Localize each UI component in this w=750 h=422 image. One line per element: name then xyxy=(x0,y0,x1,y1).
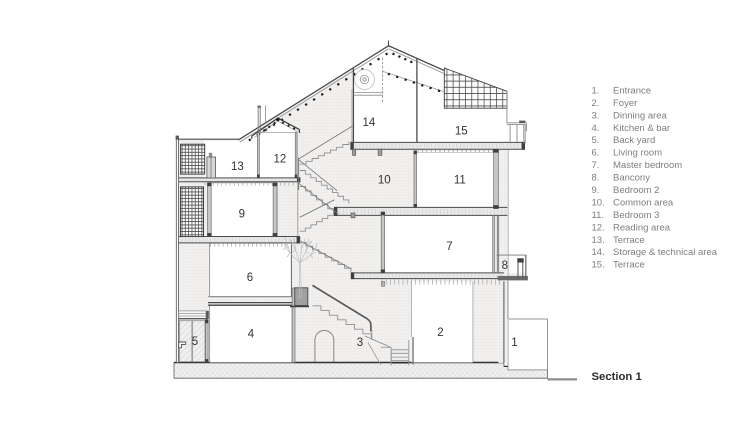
svg-text:Back yard: Back yard xyxy=(613,135,655,146)
svg-text:13: 13 xyxy=(231,161,244,173)
svg-text:6.: 6. xyxy=(592,148,600,159)
svg-text:Entrance: Entrance xyxy=(613,85,651,96)
svg-text:12: 12 xyxy=(274,153,287,165)
svg-text:6: 6 xyxy=(247,272,253,284)
svg-text:Terrace: Terrace xyxy=(613,235,645,246)
svg-text:5.: 5. xyxy=(592,135,600,146)
svg-text:9.: 9. xyxy=(592,185,600,196)
svg-text:Master bedroom: Master bedroom xyxy=(613,160,682,171)
svg-text:7.: 7. xyxy=(592,160,600,171)
svg-text:Storage & technical area: Storage & technical area xyxy=(613,247,718,258)
svg-text:Bedroom 2: Bedroom 2 xyxy=(613,185,659,196)
svg-text:10.: 10. xyxy=(592,197,605,208)
svg-text:15: 15 xyxy=(455,126,468,138)
svg-text:12.: 12. xyxy=(592,222,605,233)
svg-text:Terrace: Terrace xyxy=(613,260,645,271)
svg-text:7: 7 xyxy=(446,241,452,253)
svg-text:11.: 11. xyxy=(592,210,605,221)
svg-text:11: 11 xyxy=(454,174,466,186)
svg-text:3: 3 xyxy=(357,337,363,349)
svg-text:3.: 3. xyxy=(592,110,600,121)
svg-text:Living room: Living room xyxy=(613,148,662,159)
svg-text:5: 5 xyxy=(192,336,198,348)
svg-text:Foyer: Foyer xyxy=(613,98,637,109)
svg-text:8: 8 xyxy=(502,260,508,272)
svg-text:Dinning area: Dinning area xyxy=(613,110,668,121)
svg-text:Common area: Common area xyxy=(613,197,674,208)
svg-text:Bedroom 3: Bedroom 3 xyxy=(613,210,659,221)
svg-text:14.: 14. xyxy=(592,247,605,258)
svg-text:4: 4 xyxy=(248,329,255,341)
svg-text:Reading area: Reading area xyxy=(613,222,671,233)
svg-text:10: 10 xyxy=(378,174,391,186)
svg-text:1.: 1. xyxy=(592,85,600,96)
svg-text:8.: 8. xyxy=(592,173,600,184)
svg-text:2: 2 xyxy=(437,327,443,339)
svg-text:15.: 15. xyxy=(592,260,605,271)
svg-text:Kitchen & bar: Kitchen & bar xyxy=(613,123,670,134)
svg-text:14: 14 xyxy=(363,117,376,129)
svg-text:2.: 2. xyxy=(592,98,600,109)
svg-text:Bancony: Bancony xyxy=(613,173,650,184)
svg-text:9: 9 xyxy=(239,208,245,220)
svg-text:4.: 4. xyxy=(592,123,600,134)
svg-text:13.: 13. xyxy=(592,235,605,246)
svg-text:Section 1: Section 1 xyxy=(592,371,642,383)
svg-text:1: 1 xyxy=(511,337,517,349)
